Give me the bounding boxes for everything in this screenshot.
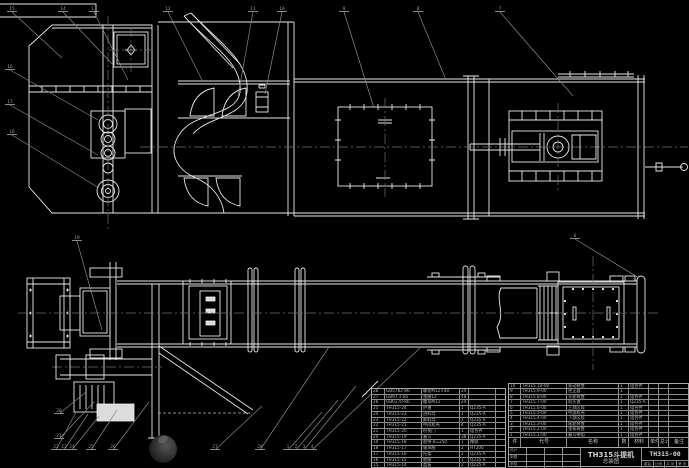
bom-cell-no: 2 bbox=[509, 427, 521, 431]
balloon-number: 15 bbox=[9, 6, 15, 12]
signature-row: 设计 bbox=[509, 448, 580, 455]
bom-cell-name: 下部区段 bbox=[567, 416, 619, 420]
end-plate bbox=[637, 276, 645, 353]
balloon-number: 20 bbox=[56, 408, 62, 414]
bom-cell-no: 6 bbox=[509, 406, 521, 410]
bom-cell-note bbox=[669, 416, 688, 420]
bom-cell-note bbox=[669, 406, 688, 410]
bom-cell-name: 张紧装置 bbox=[567, 427, 619, 431]
bom-cell-name: 垫圈12 bbox=[422, 395, 460, 400]
bom-cell-qty: 4 bbox=[460, 423, 469, 428]
bom-cell-code: TH315-17 bbox=[385, 446, 422, 451]
signature-label: 审核 bbox=[509, 462, 527, 468]
leader-line bbox=[296, 400, 338, 450]
bom-cell-no: 25 bbox=[372, 406, 385, 411]
bom-cell-note bbox=[496, 418, 505, 423]
bom-cell-no: 28 bbox=[372, 389, 385, 394]
bom-cell-code: GB6170-86 bbox=[385, 400, 422, 405]
leader-line bbox=[500, 12, 573, 96]
bom-cell-total-weight bbox=[659, 400, 669, 404]
bom-cell-note bbox=[496, 463, 505, 468]
drive-unit bbox=[52, 355, 162, 421]
bom-cell-material: Q235-A bbox=[469, 458, 496, 463]
balloon-number: 2 bbox=[295, 444, 298, 450]
bom-cell-qty: 2 bbox=[460, 463, 469, 468]
bom-cell-note bbox=[669, 395, 688, 399]
balloon-number: 14 bbox=[60, 6, 66, 12]
bom-cell-note bbox=[669, 389, 688, 393]
bom-cell-no: 18 bbox=[372, 446, 385, 451]
signature-cell bbox=[527, 462, 545, 468]
bom-cell-material: Q235-A bbox=[469, 412, 496, 417]
bom-cell-note bbox=[496, 440, 505, 445]
leader-line bbox=[344, 12, 374, 108]
bom-cell-qty: 1 bbox=[619, 384, 629, 388]
bom-cell-material bbox=[469, 395, 496, 400]
bom-cell-material: 组合件 bbox=[629, 395, 649, 399]
drawing-sheet: 1514131211109871617181962021222324252627… bbox=[0, 0, 689, 468]
bom-cell-name: 卸料口 bbox=[422, 418, 460, 423]
bom-cell-no: 7 bbox=[509, 400, 521, 404]
belt-curve bbox=[174, 16, 240, 213]
balloon-number: 12 bbox=[165, 6, 171, 12]
signature-cell bbox=[545, 462, 563, 468]
bom-cell-qty: 1 bbox=[619, 389, 629, 393]
leader-line bbox=[260, 347, 329, 450]
bom-cell-material: 组合件 bbox=[629, 416, 649, 420]
bom-cell-total-weight bbox=[659, 384, 669, 388]
bom-cell-qty: 1 bbox=[619, 433, 629, 437]
bom-cell-no: 19 bbox=[372, 440, 385, 445]
bom-cell-material: Q235-A bbox=[469, 452, 496, 457]
bom-cell-material: Q235-A bbox=[469, 423, 496, 428]
bom-cell-qty: 24 bbox=[460, 400, 469, 405]
bom-cell-qty: 48 bbox=[460, 395, 469, 400]
bucket bbox=[190, 88, 246, 116]
flange-joint bbox=[248, 266, 475, 354]
bom-cell-unit-weight bbox=[649, 422, 659, 426]
bom-cell-qty: 1 bbox=[619, 411, 629, 415]
bom-cell-no: 23 bbox=[372, 418, 385, 423]
leader-line bbox=[238, 12, 253, 96]
bom-cell-name: 螺母M12 bbox=[422, 400, 460, 405]
signature-cell bbox=[527, 448, 545, 454]
bom-cell-no: 10 bbox=[509, 384, 521, 388]
bom-cell-code: TH315.6-00 bbox=[521, 406, 567, 410]
field-weight: 重量 bbox=[642, 461, 654, 468]
bom-cell-no: 9 bbox=[509, 389, 521, 393]
bom-cell-name: 检视门 bbox=[422, 429, 460, 434]
bom-cell-total-weight bbox=[659, 395, 669, 399]
signature-cell bbox=[563, 455, 580, 461]
bom-cell-no: 15 bbox=[372, 463, 385, 468]
bom-cell-name: 轴承座 bbox=[422, 446, 460, 451]
inspection-door-plan bbox=[183, 279, 231, 346]
bom-cell-no: 1 bbox=[509, 433, 521, 437]
bom-cell-material bbox=[469, 389, 496, 394]
bom-cell-note bbox=[496, 412, 505, 417]
field-sheet-no: 第 张 bbox=[677, 461, 689, 468]
bom-cell-code: GB97.1-85 bbox=[385, 395, 422, 400]
bom-cell-code: TH315.2-00 bbox=[521, 427, 567, 431]
balloon-number: 19 bbox=[74, 235, 80, 241]
bom-left-table: 28 GB5782-86 螺栓M12×40 24 27 GB97.1-85 垫圈… bbox=[371, 388, 506, 468]
balloon-number: 9 bbox=[343, 6, 346, 12]
bom-cell-no: 21 bbox=[372, 429, 385, 434]
bom-cell-code: TH315-22 bbox=[385, 418, 422, 423]
bom-cell-qty: 1 bbox=[460, 458, 469, 463]
bom-cell-note bbox=[496, 446, 505, 451]
bom-cell-no: 20 bbox=[372, 435, 385, 440]
bom-cell-material: 组合件 bbox=[469, 429, 496, 434]
bom-cell-qty: 1 bbox=[460, 452, 469, 457]
bom-cell-unit-weight bbox=[649, 433, 659, 437]
leader-line bbox=[94, 12, 128, 80]
bom-cell-total-weight bbox=[659, 422, 669, 426]
leader-line bbox=[418, 12, 446, 80]
balloon-number: 24 bbox=[69, 444, 75, 450]
balloon-number: 7 bbox=[499, 6, 502, 12]
balloon-number: 11 bbox=[250, 6, 256, 12]
bom-cell-no: 5 bbox=[509, 411, 521, 415]
bom-cell-unit-weight bbox=[649, 384, 659, 388]
bom-cell-code: TH315-15 bbox=[385, 458, 422, 463]
bom-cell-material: 橡胶 bbox=[469, 440, 496, 445]
bom-cell-material: HT200 bbox=[469, 446, 496, 451]
bom-cell-material: 组合件 bbox=[629, 406, 649, 410]
bom-cell-total-weight bbox=[659, 406, 669, 410]
leader-line bbox=[59, 392, 86, 414]
bom-cell-note bbox=[496, 400, 505, 405]
signature-grid: 设计 制图 审核 bbox=[509, 448, 581, 468]
bom-cell-material: Q235-A bbox=[469, 406, 496, 411]
top-view bbox=[29, 13, 688, 232]
balloon-number: 17 bbox=[7, 99, 13, 105]
bom-cell-unit-weight bbox=[649, 411, 659, 415]
bom-cell-name: 中部机壳 bbox=[567, 411, 619, 415]
title-cell: TH315斗提机 总装图 bbox=[581, 448, 642, 468]
bom-cell-no: 8 bbox=[509, 395, 521, 399]
balloon-number: 18 bbox=[9, 129, 15, 135]
bom-cell-unit-weight bbox=[649, 395, 659, 399]
inlet-hopper bbox=[159, 346, 253, 414]
field-scale: 比例 bbox=[654, 461, 666, 468]
bom-cell-total-weight bbox=[659, 411, 669, 415]
field-sheets: 共 张 bbox=[665, 461, 677, 468]
balloon-number: 26 bbox=[110, 444, 116, 450]
title-block-fields: 重量 比例 共 张 第 张 bbox=[642, 460, 688, 468]
bom-cell-qty: 24 bbox=[460, 389, 469, 394]
leader-line bbox=[265, 12, 282, 94]
bom-cell-code: TH315-23 bbox=[385, 412, 422, 417]
bom-cell-qty: 1 bbox=[460, 440, 469, 445]
bom-cell-name: 尾轮装置 bbox=[567, 422, 619, 426]
balloon-number: 6 bbox=[574, 233, 577, 239]
bom-cell-note bbox=[496, 458, 505, 463]
bom-cell-qty: 1 bbox=[460, 412, 469, 417]
balloon-number: 28 bbox=[257, 444, 263, 450]
bom-cell-material: 组合件 bbox=[629, 422, 649, 426]
bom-cell-qty: 1 bbox=[619, 422, 629, 426]
leader-line bbox=[12, 12, 62, 58]
bom-cell-name: 托架 bbox=[422, 452, 460, 457]
bom-cell-code: GB5782-86 bbox=[385, 389, 422, 394]
bom-cell-name: 畚斗 bbox=[422, 435, 460, 440]
bom-cell-material: Q235-A bbox=[469, 463, 496, 468]
bom-cell-no: 26 bbox=[372, 400, 385, 405]
signature-label: 制图 bbox=[509, 455, 527, 461]
bom-cell-qty: 1 bbox=[619, 400, 629, 404]
number-cell: TH315-00 重量 比例 共 张 第 张 bbox=[642, 448, 688, 468]
bolt-detail bbox=[256, 92, 268, 112]
signature-cell bbox=[545, 455, 563, 461]
bom-cell-name: 逆止器 bbox=[567, 389, 619, 393]
signature-label: 设计 bbox=[509, 448, 527, 454]
bom-cell-qty: 1 bbox=[619, 416, 629, 420]
bom-cell-name: 中间机壳 bbox=[422, 423, 460, 428]
take-up-screw bbox=[645, 163, 683, 171]
bom-cell-name: 畚斗带组 bbox=[567, 433, 619, 437]
bom-right-table: 10 TH315.10-00 驱动装置 1 组合件 9 TH315.9-00 逆… bbox=[508, 383, 689, 447]
bom-cell-name: 头轮装置 bbox=[567, 395, 619, 399]
bom-cell-name: 驱动装置 bbox=[567, 384, 619, 388]
bom-cell-note bbox=[669, 427, 688, 431]
bom-cell-code: TH315.5-00 bbox=[521, 411, 567, 415]
drawing-subtitle: 总装图 bbox=[581, 459, 641, 466]
bom-cell-note bbox=[669, 411, 688, 415]
drawing-title: TH315斗提机 bbox=[581, 451, 641, 459]
bom-cell-note bbox=[496, 429, 505, 434]
bom-cell-code: TH315-21 bbox=[385, 423, 422, 428]
bom-cell-material: 组合件 bbox=[629, 433, 649, 437]
bom-cell-qty: 1 bbox=[619, 427, 629, 431]
bom-cell-name: 进料口 bbox=[422, 412, 460, 417]
bom-cell-no: 24 bbox=[372, 412, 385, 417]
signature-cell bbox=[563, 462, 580, 468]
bom-cell-no: 3 bbox=[509, 422, 521, 426]
bom-cell-no: 16 bbox=[372, 458, 385, 463]
bom-cell-note bbox=[669, 422, 688, 426]
bom-cell-name: 螺栓M12×40 bbox=[422, 389, 460, 394]
bom-cell-no: 17 bbox=[372, 452, 385, 457]
drawing-number: TH315-00 bbox=[642, 448, 688, 460]
signature-row: 审核 bbox=[509, 462, 580, 468]
bom-cell-unit-weight bbox=[649, 406, 659, 410]
bom-cell-total-weight bbox=[659, 427, 669, 431]
signature-cell bbox=[527, 455, 545, 461]
balloon-number: 4 bbox=[311, 444, 314, 450]
bucket bbox=[184, 178, 240, 206]
bom-cell-no: 27 bbox=[372, 395, 385, 400]
head-casing-outline bbox=[29, 25, 152, 213]
bom-cell-total-weight bbox=[659, 389, 669, 393]
bom-cell-code: TH315-19 bbox=[385, 435, 422, 440]
bom-cell-qty: 1 bbox=[619, 395, 629, 399]
signature-cell bbox=[563, 448, 580, 454]
title-block: 设计 制图 审核 TH315斗提机 总装图 TH315-00 重量 bbox=[508, 447, 689, 467]
balloon-number: 10 bbox=[279, 6, 285, 12]
bom-cell-code: TH315.1-00 bbox=[521, 433, 567, 437]
balloon-number: 27 bbox=[212, 444, 218, 450]
bom-cell-material: Q235-A bbox=[469, 435, 496, 440]
leader-line bbox=[304, 386, 356, 450]
bom-cell-code: TH315.3-00 bbox=[521, 422, 567, 426]
bom-cell-name: 底座 bbox=[422, 458, 460, 463]
bom-row: 15 TH315-14 盖板 2 Q235-A bbox=[372, 463, 505, 468]
bom-cell-code: TH315-16 bbox=[385, 452, 422, 457]
balloon-number: 23 bbox=[61, 444, 67, 450]
bom-cell-name: 机头罩 bbox=[567, 400, 619, 404]
bom-cell-name: 胶带 B=250 bbox=[422, 440, 460, 445]
bom-cell-qty: 1 bbox=[460, 429, 469, 434]
bom-cell-note bbox=[669, 433, 688, 437]
balloon-number: 22 bbox=[53, 444, 59, 450]
bom-cell-code: TH315-20 bbox=[385, 429, 422, 434]
bom-cell-material: 组合件 bbox=[629, 411, 649, 415]
bom-cell-total-weight bbox=[659, 416, 669, 420]
bom-cell-note bbox=[496, 423, 505, 428]
bom-cell-material bbox=[469, 400, 496, 405]
signature-row: 制图 bbox=[509, 455, 580, 462]
bom-cell-qty: 1 bbox=[619, 406, 629, 410]
bom-cell-qty: 38 bbox=[460, 435, 469, 440]
watermark-logo bbox=[149, 435, 177, 463]
bom-cell-note bbox=[496, 435, 505, 440]
balloon-number: 3 bbox=[303, 444, 306, 450]
bom-cell-name: 上部区段 bbox=[567, 406, 619, 410]
bom-cell-code: TH315.9-00 bbox=[521, 389, 567, 393]
balloon-number: 8 bbox=[417, 6, 420, 12]
balloon-number: 13 bbox=[91, 6, 97, 12]
bom-cell-note bbox=[669, 400, 688, 404]
bom-cell-unit-weight bbox=[649, 427, 659, 431]
bom-cell-material: Q235-A bbox=[629, 400, 649, 404]
bom-cell-code: TH315.7-00 bbox=[521, 400, 567, 404]
bom-cell-material bbox=[629, 389, 649, 393]
bom-cell-note bbox=[496, 395, 505, 400]
balloon-number: 1 bbox=[287, 444, 290, 450]
bom-cell-note bbox=[669, 384, 688, 388]
bom-cell-qty: 1 bbox=[460, 418, 469, 423]
bom-cell-note bbox=[496, 406, 505, 411]
bom-cell-material: 组合件 bbox=[629, 427, 649, 431]
leader-line bbox=[575, 239, 639, 278]
bom-cell-code: TH315-14 bbox=[385, 463, 422, 468]
bom-cell-material: Q235-A bbox=[469, 418, 496, 423]
bom-cell-no: 4 bbox=[509, 416, 521, 420]
bom-cell-total-weight bbox=[659, 433, 669, 437]
signature-cell bbox=[545, 448, 563, 454]
balloon-number: 21 bbox=[56, 433, 62, 439]
bom-cell-note bbox=[496, 389, 505, 394]
leader-line bbox=[12, 135, 99, 188]
bom-cell-unit-weight bbox=[649, 416, 659, 420]
bom-cell-name: 护罩 bbox=[422, 406, 460, 411]
balloon-number: 25 bbox=[88, 444, 94, 450]
bom-cell-qty: 1 bbox=[460, 406, 469, 411]
bom-cell-name: 盖板 bbox=[422, 463, 460, 468]
bom-cell-code: TH315.4-00 bbox=[521, 416, 567, 420]
bom-cell-unit-weight bbox=[649, 400, 659, 404]
bom-cell-code: TH315-24 bbox=[385, 406, 422, 411]
bom-cell-code: TH315-18 bbox=[385, 440, 422, 445]
bom-cell-no: 22 bbox=[372, 423, 385, 428]
bom-cell-material: 组合件 bbox=[629, 384, 649, 388]
bom-cell-code: TH315.8-00 bbox=[521, 395, 567, 399]
leader-line bbox=[77, 241, 102, 330]
leader-line bbox=[59, 402, 94, 439]
balloon-number: 16 bbox=[7, 64, 13, 70]
bom-cell-note bbox=[496, 452, 505, 457]
bom-cell-code: TH315.10-00 bbox=[521, 384, 567, 388]
bom-cell-qty: 2 bbox=[460, 446, 469, 451]
bom-cell-unit-weight bbox=[649, 389, 659, 393]
